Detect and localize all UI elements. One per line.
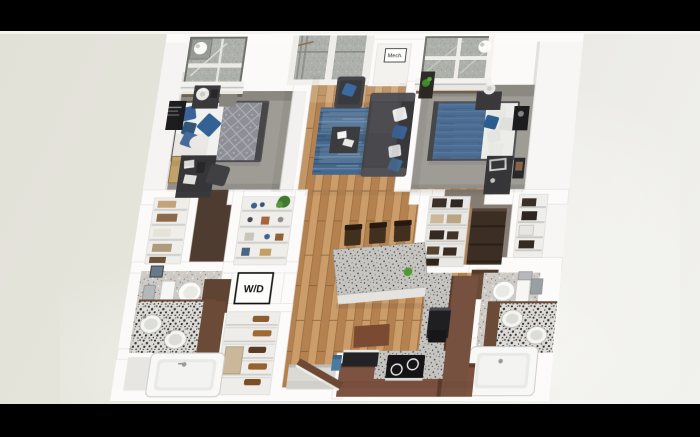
svg-text:W/D: W/D bbox=[243, 284, 265, 296]
svg-text:Mech.: Mech. bbox=[387, 53, 403, 59]
